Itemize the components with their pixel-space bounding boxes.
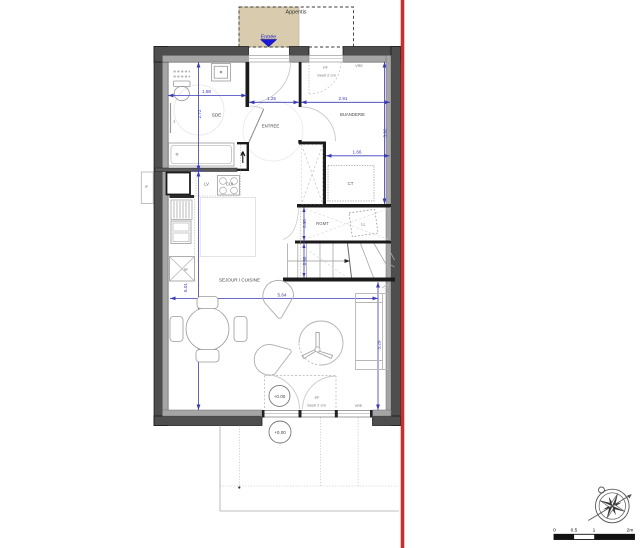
svg-text:RGMT: RGMT (316, 221, 329, 226)
svg-text:3.92: 3.92 (382, 128, 387, 137)
svg-text:SEJOUR / CUISINE: SEJOUR / CUISINE (219, 278, 260, 283)
svg-text:6.01: 6.01 (183, 283, 188, 292)
svg-text:2.91: 2.91 (339, 96, 348, 101)
svg-text:3.29: 3.29 (376, 340, 381, 349)
svg-text:LL: LL (361, 223, 365, 227)
svg-text:1.66: 1.66 (353, 150, 362, 155)
svg-text:BUANDERIE: BUANDERIE (340, 112, 365, 117)
svg-text:Appentis: Appentis (286, 10, 307, 16)
svg-text:VRE: VRE (355, 404, 363, 408)
svg-text:+0.00: +0.00 (274, 430, 286, 435)
svg-text:2.72: 2.72 (197, 109, 202, 118)
svg-text:CUI: CUI (226, 182, 233, 187)
svg-text:2m: 2m (627, 528, 634, 534)
svg-text:+0.00: +0.00 (274, 394, 286, 399)
svg-text:ENTREE: ENTREE (262, 124, 280, 129)
svg-text:LV: LV (204, 182, 209, 187)
svg-text:5.64: 5.64 (278, 292, 287, 297)
svg-text:1: 1 (593, 528, 596, 534)
svg-text:1.25: 1.25 (267, 96, 276, 101)
svg-text:0.5: 0.5 (571, 528, 578, 534)
svg-text:0: 0 (553, 528, 556, 534)
svg-text:1.98: 1.98 (202, 89, 211, 94)
svg-text:S: S (144, 185, 149, 188)
svg-text:VRE: VRE (355, 64, 363, 68)
svg-text:PF: PF (315, 396, 321, 400)
svg-text:0.90: 0.90 (302, 256, 307, 265)
svg-text:RF: RF (184, 268, 189, 272)
svg-text:0.90: 0.90 (302, 219, 307, 228)
svg-text:SDE: SDE (212, 113, 221, 118)
svg-text:Seuil 2 cm: Seuil 2 cm (317, 73, 336, 78)
svg-text:CT: CT (348, 181, 354, 186)
svg-text:Seuil 2 cm: Seuil 2 cm (307, 403, 326, 408)
svg-text:PF: PF (323, 66, 329, 70)
svg-text:s: s (174, 120, 176, 124)
